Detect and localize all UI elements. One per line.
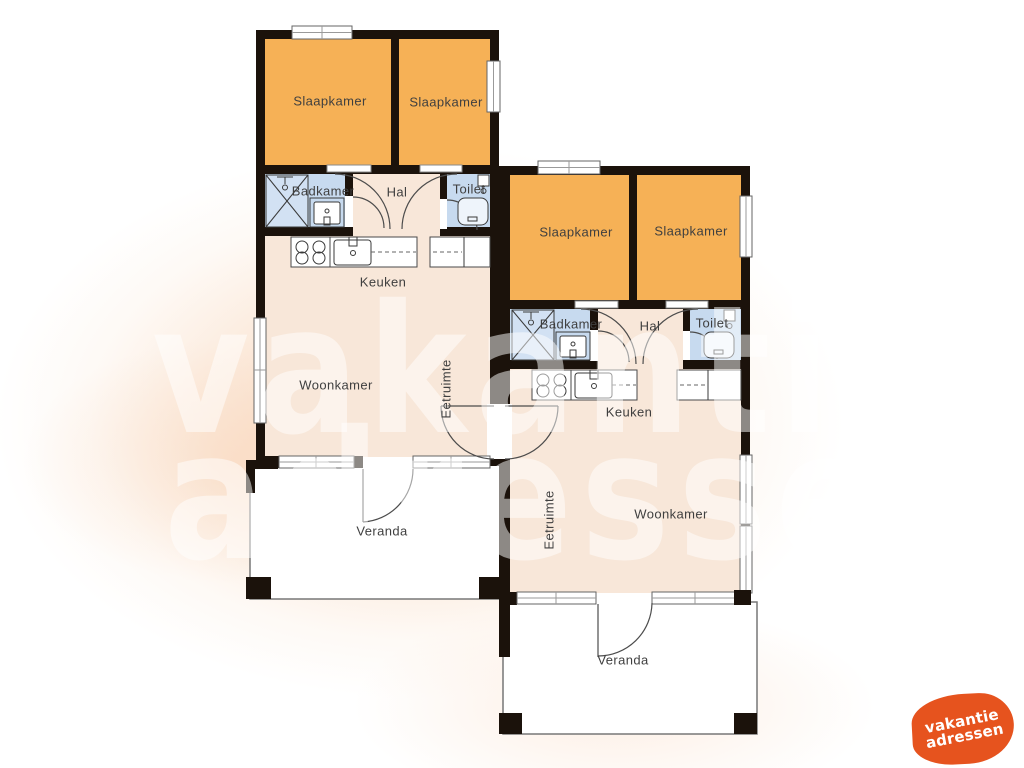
room-label-toilet-right: Toilet: [696, 316, 729, 331]
room-label-slaapkamer-2-right: Slaapkamer: [654, 224, 727, 239]
room-label-toilet-left: Toilet: [453, 182, 486, 197]
room-label-veranda-left: Veranda: [356, 524, 407, 539]
logo-text: vakantie adressen: [921, 706, 1004, 751]
room-label-woonkamer-right: Woonkamer: [634, 507, 707, 522]
window: [487, 61, 500, 112]
kitchen-counter: [430, 237, 490, 267]
window: [740, 526, 752, 593]
room-label-slaapkamer-1-left: Slaapkamer: [293, 94, 366, 109]
window: [652, 592, 738, 604]
veranda-right-floor: [503, 602, 757, 734]
window: [740, 196, 752, 257]
window: [538, 161, 600, 174]
logo-blob: vakantie adressen: [910, 691, 1016, 766]
room-label-keuken-right: Keuken: [606, 405, 653, 420]
vakantieadressen-logo: vakantie adressen: [912, 694, 1014, 764]
room-label-woonkamer-left: Woonkamer: [299, 378, 372, 393]
window: [517, 592, 596, 604]
room-label-slaapkamer-2-left: Slaapkamer: [409, 95, 482, 110]
window: [279, 456, 354, 468]
window: [740, 455, 752, 524]
room-label-hal-right: Hal: [640, 319, 661, 334]
room-label-slaapkamer-1-right: Slaapkamer: [539, 225, 612, 240]
room-label-veranda-right: Veranda: [597, 653, 648, 668]
room-label-badkamer-right: Badkamer: [540, 317, 602, 332]
floorplan-page: vakantie adressen Slaapkamer Slaapkamer …: [0, 0, 1024, 768]
window: [413, 456, 490, 468]
room-label-eetruimte-right: Eetruimte: [542, 490, 557, 549]
sink-icon: [556, 332, 590, 360]
room-label-keuken-left: Keuken: [360, 275, 407, 290]
sink-icon: [310, 198, 344, 227]
window: [254, 318, 266, 423]
window: [292, 26, 352, 39]
room-label-hal-left: Hal: [387, 185, 408, 200]
room-label-badkamer-left: Badkamer: [292, 184, 354, 199]
kitchen-counter: [677, 370, 741, 400]
floorplan-drawing: [0, 0, 1024, 768]
room-label-eetruimte-left: Eetruimte: [439, 359, 454, 418]
